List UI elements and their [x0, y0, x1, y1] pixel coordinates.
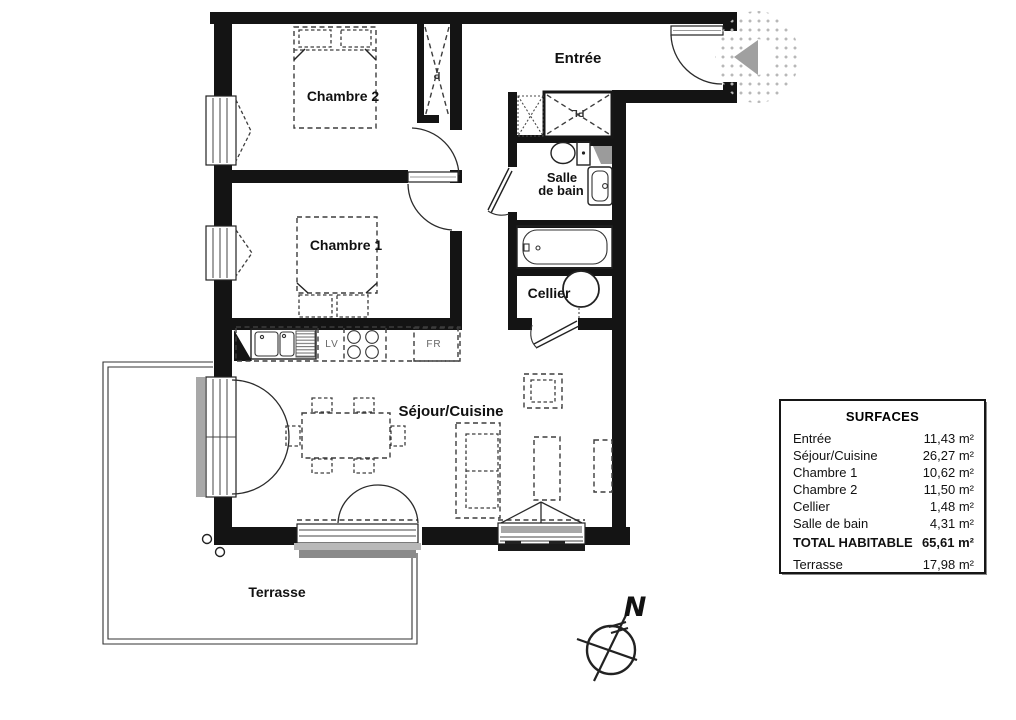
floor-plan-drawing: P PL: [0, 0, 1016, 720]
cooktop: [348, 331, 379, 359]
shower-screen: [593, 146, 612, 164]
bedroom-doors: [408, 128, 459, 230]
window-chambre1: [206, 226, 252, 280]
cellier-door: [531, 321, 579, 348]
north-label: N: [624, 592, 647, 623]
dishwasher-label: LV: [325, 339, 339, 350]
surface-label: Entrée: [793, 431, 831, 448]
surface-value: 26,27 m²: [923, 448, 974, 465]
surfaces-rows: Entrée 11,43 m² Séjour/Cuisine 26,27 m² …: [781, 424, 984, 574]
kitchen-counter: LV FR: [236, 327, 460, 361]
surface-label: Salle de bain: [793, 516, 868, 533]
sofa: [456, 423, 500, 518]
tv-unit: [594, 440, 612, 492]
bed-chambre2: [294, 27, 376, 128]
sill-left: [196, 377, 205, 497]
surface-label: TOTAL HABITABLE: [793, 535, 913, 552]
french-door-left: [196, 377, 289, 497]
placard-p-label: P: [433, 69, 440, 80]
terrace-outline: [103, 362, 417, 644]
surface-row: Chambre 2 11,50 m²: [793, 482, 974, 499]
surface-value: 10,62 m²: [923, 465, 974, 482]
terrace-post: [216, 548, 225, 557]
entry-arrow: [715, 11, 799, 103]
fridge-label: FR: [426, 339, 441, 350]
floor-plan-page: P PL: [0, 0, 1016, 720]
surface-row-total: TOTAL HABITABLE 65,61 m²: [793, 535, 974, 552]
label-cellier: Cellier: [528, 285, 571, 301]
entrance-closet: PL: [518, 92, 612, 137]
surface-label: Chambre 2: [793, 482, 857, 499]
placard-pl-label: PL: [572, 107, 585, 118]
sink-drainer: [296, 331, 315, 357]
surface-value: 11,43 m²: [924, 431, 974, 448]
label-chambre1: Chambre 1: [310, 237, 383, 253]
kitchen-sink: [251, 329, 316, 359]
surface-label: Séjour/Cuisine: [793, 448, 878, 465]
surface-label: Chambre 1: [793, 465, 857, 482]
compass: N: [577, 592, 647, 681]
bathroom-door: [488, 168, 512, 215]
sill-bottom-light: [294, 543, 421, 550]
label-terrasse: Terrasse: [248, 584, 306, 600]
surfaces-title: SURFACES: [781, 401, 984, 424]
terrace-post: [203, 535, 212, 544]
dining-table: [286, 398, 405, 473]
surface-row: Entrée 11,43 m²: [793, 431, 974, 448]
surface-value: 11,50 m²: [924, 482, 974, 499]
tilt-window-bottom: [498, 502, 585, 551]
bed-chambre1: [297, 217, 377, 317]
sill-bottom-dark: [299, 550, 416, 558]
bathtub: [517, 226, 612, 268]
surface-row: Cellier 1,48 m²: [793, 499, 974, 516]
surface-row: Chambre 1 10,62 m²: [793, 465, 974, 482]
surface-value: 17,98 m²: [923, 557, 974, 574]
surface-row: Séjour/Cuisine 26,27 m²: [793, 448, 974, 465]
cabinet: [534, 437, 560, 500]
surfaces-table: SURFACES Entrée 11,43 m² Séjour/Cuisine …: [779, 399, 986, 574]
surface-value: 65,61 m²: [922, 535, 974, 552]
washbasin: [588, 167, 612, 205]
surface-value: 4,31 m²: [930, 516, 974, 533]
label-entree: Entrée: [555, 50, 602, 67]
surface-row-terrace: Terrasse 17,98 m²: [793, 557, 974, 574]
label-salle-de-bain-2: de bain: [538, 183, 584, 198]
side-table: [524, 374, 562, 408]
walls: [210, 12, 737, 545]
surface-label: Terrasse: [793, 557, 843, 574]
surface-row: Salle de bain 4,31 m²: [793, 516, 974, 533]
label-sejour-cuisine: Séjour/Cuisine: [398, 403, 503, 420]
placard-chambre2: P: [425, 27, 449, 117]
surface-label: Cellier: [793, 499, 830, 516]
surface-value: 1,48 m²: [930, 499, 974, 516]
label-chambre2: Chambre 2: [307, 88, 380, 104]
window-chambre2: [206, 96, 251, 165]
